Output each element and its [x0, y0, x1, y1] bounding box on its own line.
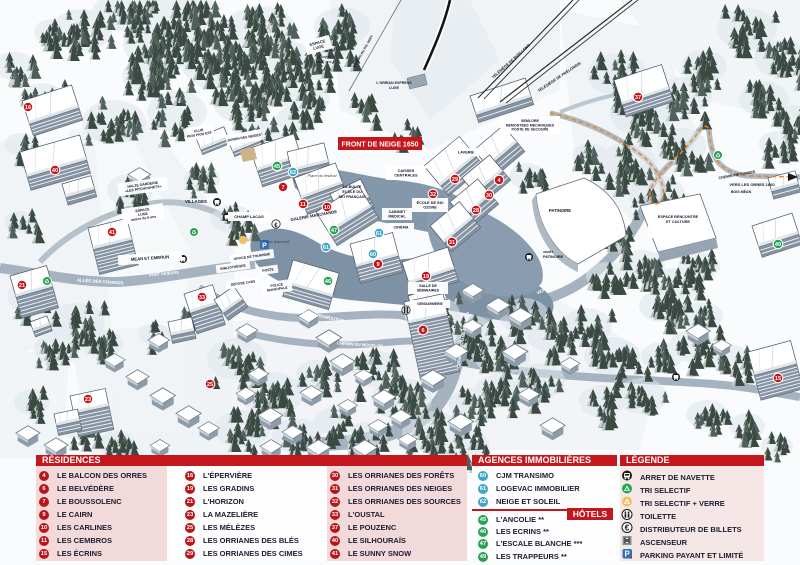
svg-text:FRONT DE NEIGE 1650: FRONT DE NEIGE 1650	[341, 141, 418, 148]
svg-text:31: 31	[449, 240, 455, 246]
svg-text:11: 11	[300, 202, 306, 208]
svg-text:OZONE: OZONE	[423, 206, 437, 210]
svg-text:29: 29	[452, 177, 458, 183]
svg-text:ET CULTURE: ET CULTURE	[666, 220, 690, 224]
svg-text:CAISSES: CAISSES	[398, 169, 415, 173]
svg-text:28: 28	[473, 208, 479, 214]
svg-text:♻: ♻	[715, 153, 720, 160]
svg-text:47: 47	[331, 228, 337, 234]
svg-text:46: 46	[325, 279, 331, 285]
svg-text:62: 62	[290, 170, 296, 176]
svg-text:ARRÊT: ARRÊT	[543, 249, 554, 254]
svg-text:ESPACE RENCONTRE: ESPACE RENCONTRE	[658, 215, 699, 219]
svg-text:de 7 ans: de 7 ans	[316, 59, 331, 64]
svg-text:60: 60	[370, 252, 376, 258]
svg-text:33: 33	[199, 295, 205, 301]
svg-text:SÉMINAIRES: SÉMINAIRES	[417, 287, 440, 292]
svg-text:BOIS MÉAN: BOIS MÉAN	[731, 189, 752, 194]
svg-text:L'ORRIAN EXPRESS: L'ORRIAN EXPRESS	[376, 81, 412, 85]
svg-text:SKI FRANÇAIS: SKI FRANÇAIS	[338, 195, 365, 199]
svg-text:21: 21	[19, 283, 25, 289]
svg-text:PATINOIRE: PATINOIRE	[543, 255, 564, 259]
svg-text:Place d'accueil: Place d'accueil	[263, 239, 290, 244]
svg-text:GENDARMERIE: GENDARMERIE	[417, 302, 443, 306]
svg-text:19: 19	[423, 274, 429, 280]
svg-text:CABINET: CABINET	[389, 210, 407, 214]
svg-text:CHAMP LACAS: CHAMP LACAS	[234, 214, 264, 219]
svg-text:♻: ♻	[44, 279, 49, 286]
svg-text:LUGE: LUGE	[389, 86, 400, 90]
svg-text:VERS LES ORRES 1800: VERS LES ORRES 1800	[729, 182, 775, 187]
svg-text:€: €	[625, 523, 630, 533]
svg-text:MÉDICAL: MÉDICAL	[388, 214, 406, 219]
svg-text:41: 41	[109, 230, 115, 236]
svg-text:Place du festival: Place du festival	[307, 173, 336, 178]
svg-text:7: 7	[281, 185, 284, 191]
svg-text:LA BULLE: LA BULLE	[343, 185, 362, 189]
svg-text:ÉCOLE DU: ÉCOLE DU	[342, 189, 362, 194]
svg-text:CENTRALES: CENTRALES	[394, 174, 418, 178]
svg-text:49: 49	[775, 242, 781, 248]
svg-text:LAVERIE: LAVERIE	[458, 150, 475, 154]
svg-text:32: 32	[430, 192, 436, 198]
svg-text:61: 61	[376, 231, 382, 237]
svg-text:P: P	[625, 550, 631, 559]
svg-text:37: 37	[635, 95, 641, 101]
svg-text:9: 9	[376, 262, 379, 268]
svg-text:61: 61	[323, 245, 329, 251]
svg-text:45: 45	[274, 164, 280, 170]
svg-text:CINÉMA: CINÉMA	[394, 224, 409, 229]
svg-text:30: 30	[486, 193, 492, 199]
svg-text:25: 25	[207, 382, 213, 388]
svg-text:PATINOIRE: PATINOIRE	[549, 208, 571, 213]
svg-text:16: 16	[25, 105, 31, 111]
svg-text:POSTE DE SECOURS: POSTE DE SECOURS	[512, 128, 550, 132]
svg-text:ÉCOLE DE SKI: ÉCOLE DE SKI	[417, 200, 444, 205]
svg-text:6: 6	[421, 328, 424, 334]
svg-text:23: 23	[85, 397, 91, 403]
svg-text:VILLAGES: VILLAGES	[185, 199, 207, 204]
svg-text:40: 40	[52, 168, 58, 174]
svg-text:15: 15	[775, 376, 781, 382]
svg-text:♻: ♻	[191, 230, 196, 237]
